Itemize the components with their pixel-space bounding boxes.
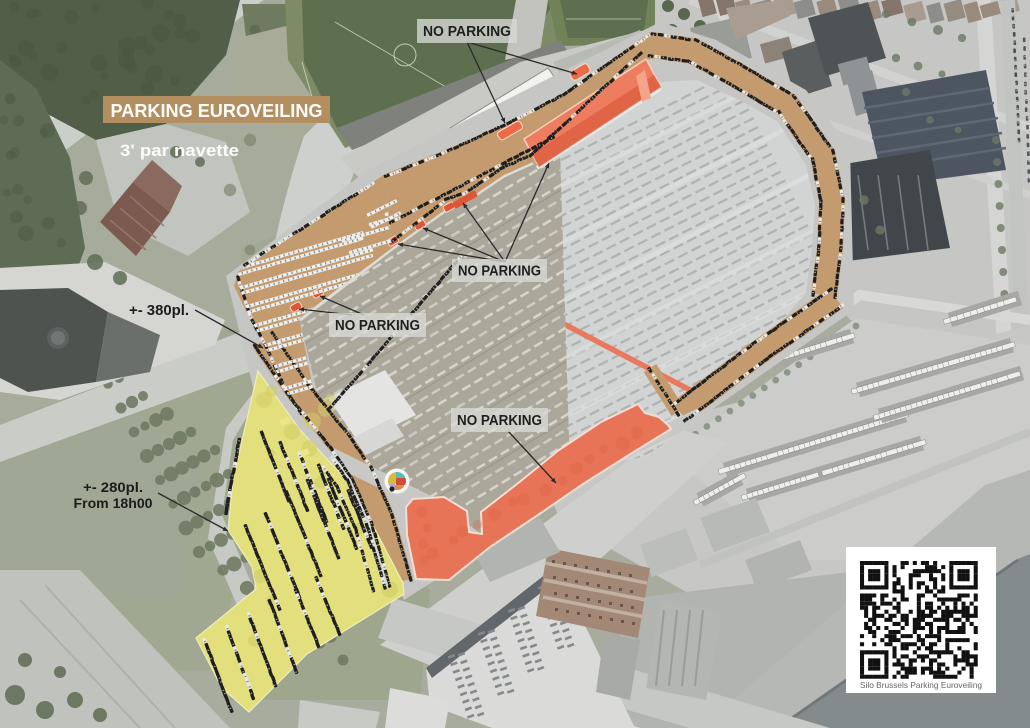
svg-text:From 18h00: From 18h00 — [74, 495, 153, 511]
svg-text:+- 380pl.: +- 380pl. — [129, 303, 189, 319]
svg-text:NO PARKING: NO PARKING — [457, 413, 542, 429]
svg-text:NO PARKING: NO PARKING — [423, 24, 511, 40]
svg-text:NO PARKING: NO PARKING — [458, 264, 541, 280]
svg-text:+- 280pl.: +- 280pl. — [83, 479, 143, 495]
svg-text:PARKING EUROVEILING: PARKING EUROVEILING — [111, 101, 323, 121]
svg-text:Silo Brussels Parking Euroveil: Silo Brussels Parking Euroveiling — [860, 680, 982, 690]
svg-text:3' par navette: 3' par navette — [120, 141, 239, 160]
svg-text:NO PARKING: NO PARKING — [335, 318, 420, 334]
